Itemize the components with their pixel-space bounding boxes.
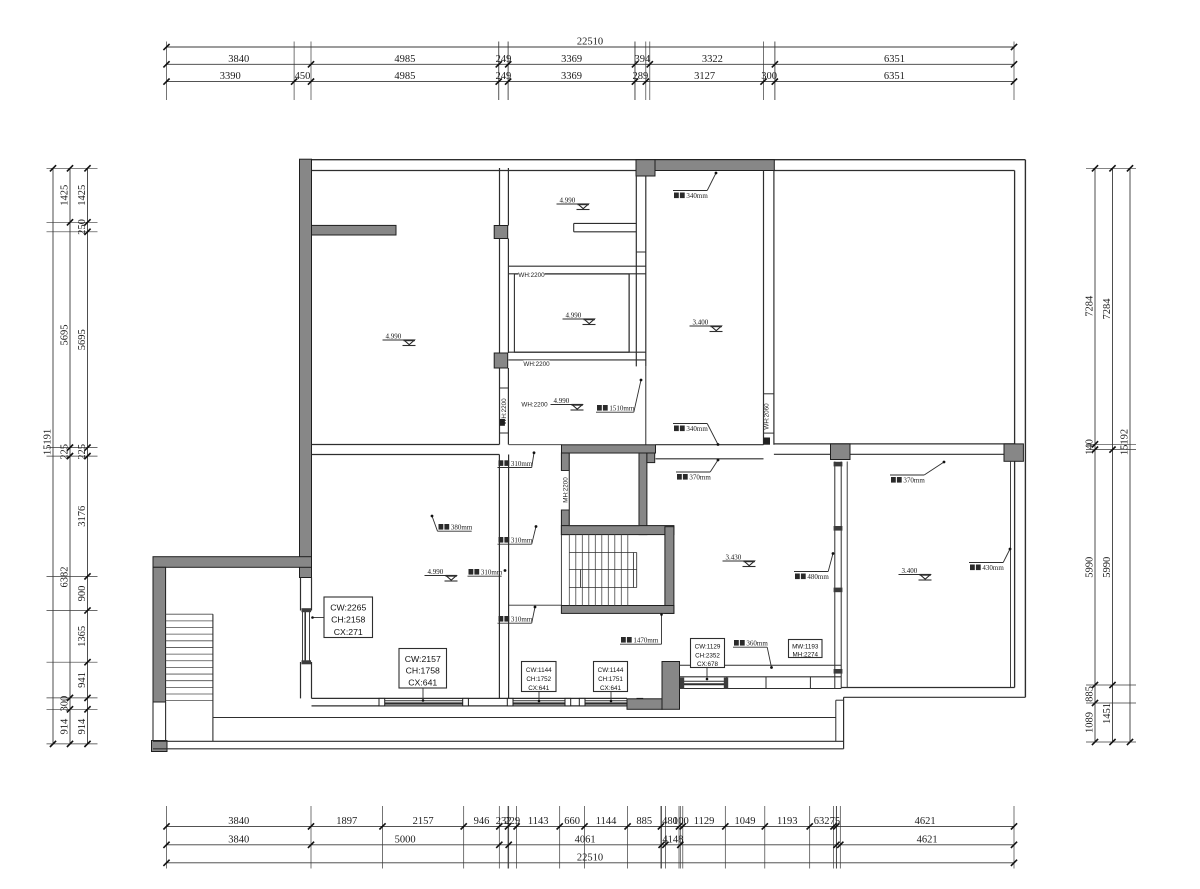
svg-text:1089: 1089 <box>1085 712 1096 733</box>
svg-text:3369: 3369 <box>561 71 582 82</box>
svg-text:310mm: 310mm <box>511 537 533 545</box>
svg-text:6351: 6351 <box>884 54 905 65</box>
svg-text:249: 249 <box>496 54 512 65</box>
svg-text:4985: 4985 <box>394 71 415 82</box>
svg-text:WH:2200: WH:2200 <box>501 398 508 425</box>
svg-text:225: 225 <box>77 444 88 460</box>
svg-text:225: 225 <box>60 444 71 460</box>
svg-text:5000: 5000 <box>395 834 416 845</box>
svg-text:4.990: 4.990 <box>428 568 444 576</box>
svg-text:310mm: 310mm <box>511 616 533 624</box>
svg-text:229: 229 <box>504 816 520 827</box>
svg-text:CW:2157: CW:2157 <box>405 654 441 664</box>
svg-text:3369: 3369 <box>561 54 582 65</box>
svg-text:MH:2200: MH:2200 <box>563 477 570 503</box>
svg-text:4.990: 4.990 <box>560 197 576 205</box>
svg-text:CW:1129: CW:1129 <box>695 644 721 651</box>
svg-text:340mm: 340mm <box>686 425 708 433</box>
svg-text:1510mm: 1510mm <box>609 405 634 413</box>
svg-text:4061: 4061 <box>575 834 596 845</box>
svg-text:1425: 1425 <box>60 185 71 206</box>
svg-text:15191: 15191 <box>43 429 54 455</box>
svg-text:WH:2060: WH:2060 <box>764 403 771 430</box>
svg-text:5990: 5990 <box>1102 557 1113 578</box>
svg-text:140: 140 <box>1085 439 1096 455</box>
svg-text:289: 289 <box>632 71 648 82</box>
svg-text:CW:2265: CW:2265 <box>330 603 366 613</box>
svg-text:75: 75 <box>830 816 841 827</box>
svg-text:1049: 1049 <box>735 816 756 827</box>
svg-text:3.400: 3.400 <box>693 319 709 327</box>
svg-text:370mm: 370mm <box>689 474 711 482</box>
svg-text:450: 450 <box>295 71 311 82</box>
svg-text:15192: 15192 <box>1120 429 1131 455</box>
svg-text:3840: 3840 <box>228 54 249 65</box>
svg-text:1143: 1143 <box>528 816 549 827</box>
svg-text:4621: 4621 <box>915 816 936 827</box>
svg-text:4985: 4985 <box>394 54 415 65</box>
svg-text:632: 632 <box>814 816 830 827</box>
svg-text:22510: 22510 <box>577 852 603 863</box>
svg-text:1144: 1144 <box>596 816 617 827</box>
svg-text:4.990: 4.990 <box>554 397 570 405</box>
svg-text:1897: 1897 <box>336 816 357 827</box>
svg-text:300: 300 <box>761 71 777 82</box>
svg-text:3.430: 3.430 <box>726 554 742 562</box>
svg-text:6351: 6351 <box>884 71 905 82</box>
svg-text:WH:2200: WH:2200 <box>518 272 545 279</box>
svg-text:885: 885 <box>636 816 652 827</box>
svg-text:300: 300 <box>60 696 71 712</box>
svg-text:3176: 3176 <box>77 506 88 527</box>
svg-text:WH:2200: WH:2200 <box>523 361 550 368</box>
svg-text:3390: 3390 <box>220 71 241 82</box>
svg-text:660: 660 <box>564 816 580 827</box>
svg-text:100: 100 <box>673 816 689 827</box>
svg-text:885: 885 <box>1085 686 1096 702</box>
svg-text:MH:2274: MH:2274 <box>792 651 818 658</box>
svg-text:370mm: 370mm <box>903 477 925 485</box>
svg-text:WH:2200: WH:2200 <box>521 402 548 409</box>
svg-text:3127: 3127 <box>694 71 715 82</box>
svg-text:CH:1751: CH:1751 <box>598 676 623 683</box>
svg-text:310mm: 310mm <box>481 569 503 577</box>
svg-text:CW:1144: CW:1144 <box>526 667 552 674</box>
svg-text:1129: 1129 <box>694 816 715 827</box>
svg-text:4.990: 4.990 <box>566 312 582 320</box>
svg-text:CX:641: CX:641 <box>600 685 622 692</box>
svg-text:249: 249 <box>496 71 512 82</box>
svg-text:3322: 3322 <box>702 54 723 65</box>
svg-text:CX:271: CX:271 <box>334 627 363 637</box>
svg-text:480mm: 480mm <box>807 573 829 581</box>
svg-text:4148: 4148 <box>662 834 683 845</box>
svg-text:6382: 6382 <box>60 567 71 588</box>
svg-text:7284: 7284 <box>1102 298 1113 320</box>
svg-text:CX:641: CX:641 <box>528 685 550 692</box>
svg-text:250: 250 <box>77 219 88 235</box>
svg-text:340mm: 340mm <box>686 192 708 200</box>
svg-text:CH:1758: CH:1758 <box>406 666 440 676</box>
svg-text:946: 946 <box>474 816 490 827</box>
svg-text:2157: 2157 <box>413 816 434 827</box>
svg-text:310mm: 310mm <box>511 460 533 468</box>
svg-text:430mm: 430mm <box>982 564 1004 572</box>
svg-text:1470mm: 1470mm <box>633 637 658 645</box>
svg-text:914: 914 <box>77 718 88 735</box>
svg-text:CH:2352: CH:2352 <box>695 652 720 659</box>
svg-text:CX:641: CX:641 <box>408 677 437 687</box>
svg-text:4.990: 4.990 <box>386 333 402 341</box>
svg-text:1193: 1193 <box>777 816 798 827</box>
svg-text:3.400: 3.400 <box>902 567 918 575</box>
svg-text:3840: 3840 <box>228 834 249 845</box>
svg-text:1425: 1425 <box>77 185 88 206</box>
svg-text:CX:678: CX:678 <box>697 661 719 668</box>
svg-text:941: 941 <box>77 672 88 688</box>
svg-text:914: 914 <box>60 718 71 735</box>
svg-text:4621: 4621 <box>917 834 938 845</box>
svg-text:360mm: 360mm <box>746 640 768 648</box>
svg-text:394: 394 <box>635 54 652 65</box>
svg-text:CH:1752: CH:1752 <box>526 676 551 683</box>
svg-text:CH:2158: CH:2158 <box>331 615 365 625</box>
svg-text:22510: 22510 <box>577 37 603 48</box>
svg-text:3840: 3840 <box>228 816 249 827</box>
svg-text:MW:1193: MW:1193 <box>792 644 819 651</box>
svg-text:1451: 1451 <box>1102 703 1113 724</box>
svg-text:1365: 1365 <box>77 626 88 647</box>
svg-text:900: 900 <box>77 586 88 602</box>
svg-text:CW:1144: CW:1144 <box>598 667 624 674</box>
svg-text:7284: 7284 <box>1085 295 1096 317</box>
svg-text:380mm: 380mm <box>451 524 473 532</box>
svg-text:5990: 5990 <box>1085 557 1096 578</box>
svg-text:5695: 5695 <box>60 324 71 345</box>
svg-text:5695: 5695 <box>77 329 88 350</box>
